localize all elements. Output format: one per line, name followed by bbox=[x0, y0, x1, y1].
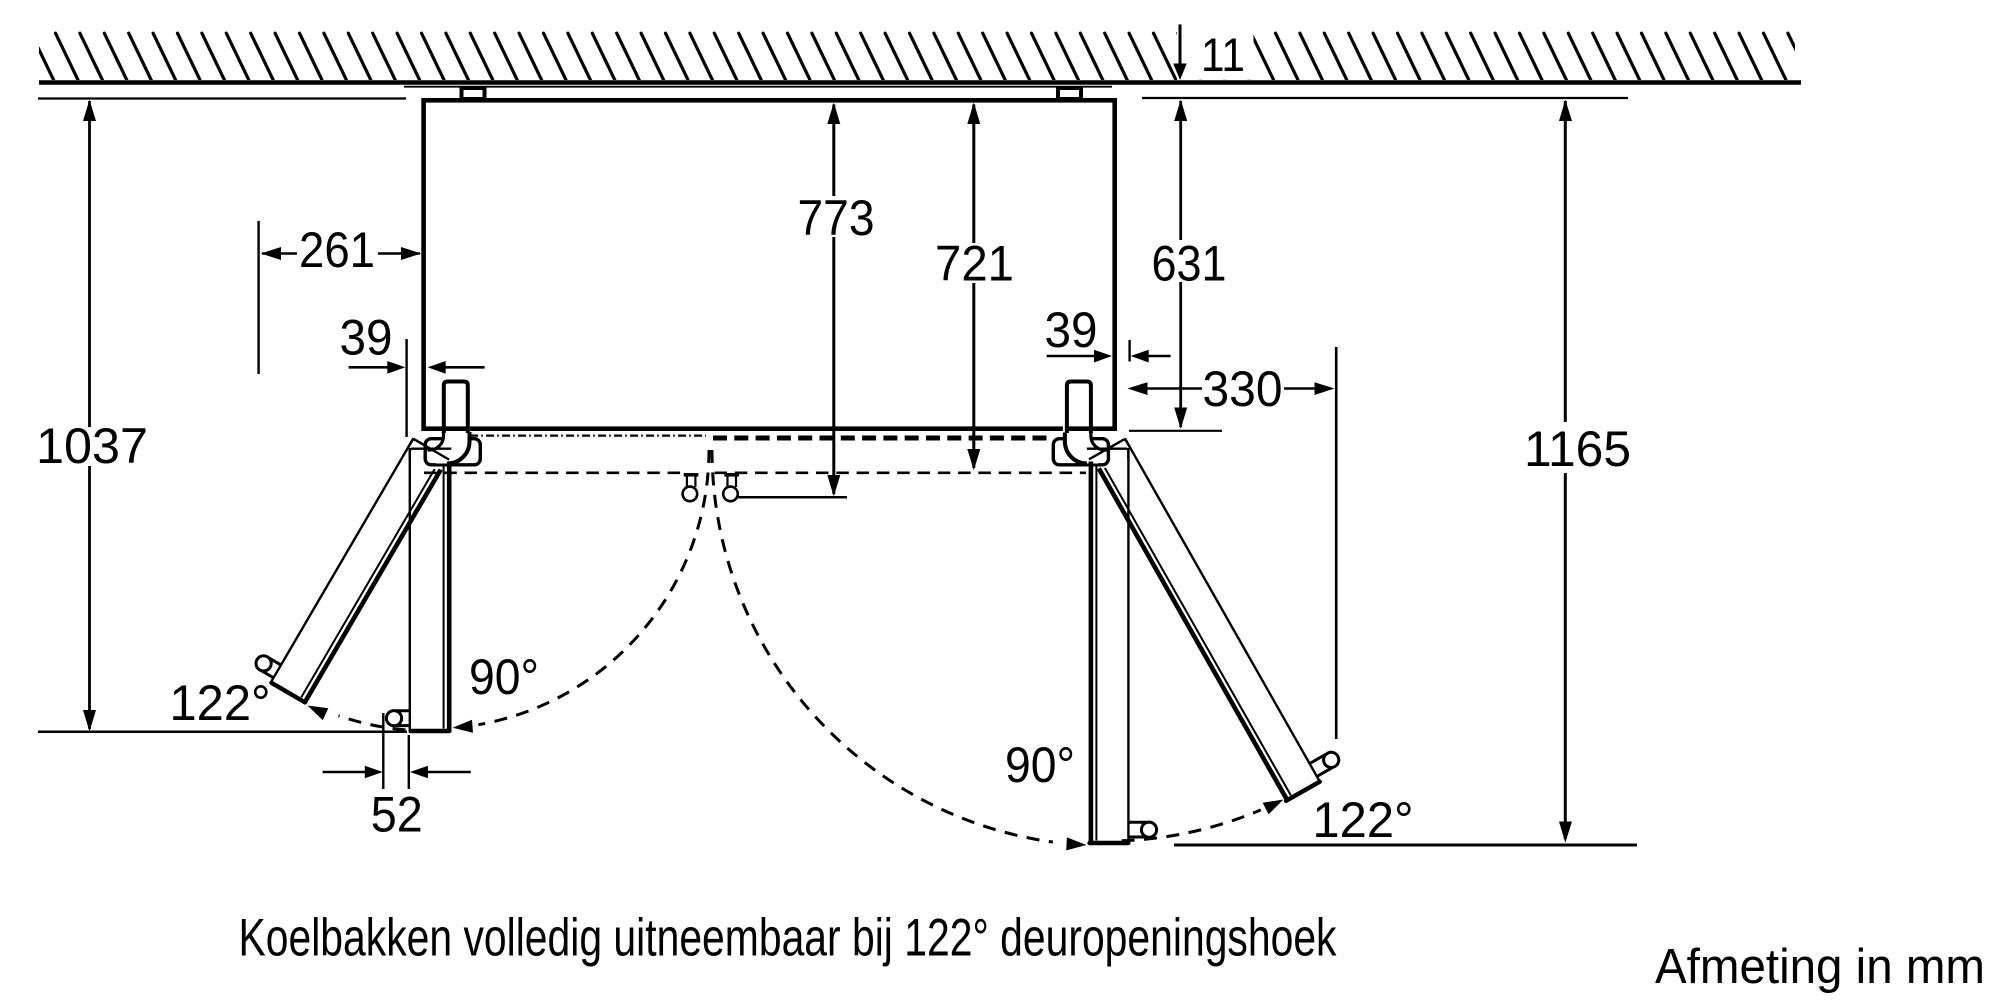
svg-text:90°: 90° bbox=[1005, 737, 1075, 793]
svg-text:1165: 1165 bbox=[1524, 421, 1631, 477]
svg-text:773: 773 bbox=[798, 190, 875, 246]
svg-text:330: 330 bbox=[1203, 361, 1283, 417]
svg-text:Afmeting in mm: Afmeting in mm bbox=[1655, 940, 1985, 994]
svg-text:39: 39 bbox=[1045, 302, 1098, 358]
svg-text:90°: 90° bbox=[469, 649, 539, 705]
svg-text:11: 11 bbox=[1201, 28, 1245, 81]
svg-text:261: 261 bbox=[299, 222, 375, 278]
svg-text:52: 52 bbox=[371, 787, 423, 843]
svg-text:122°: 122° bbox=[170, 675, 271, 731]
svg-text:122°: 122° bbox=[1313, 792, 1414, 848]
svg-text:39: 39 bbox=[340, 310, 393, 366]
svg-text:721: 721 bbox=[935, 236, 1014, 292]
svg-text:Koelbakken volledig uitneembaa: Koelbakken volledig uitneembaar bij 122°… bbox=[239, 909, 1337, 968]
svg-text:1037: 1037 bbox=[36, 418, 148, 474]
svg-text:631: 631 bbox=[1152, 236, 1227, 292]
